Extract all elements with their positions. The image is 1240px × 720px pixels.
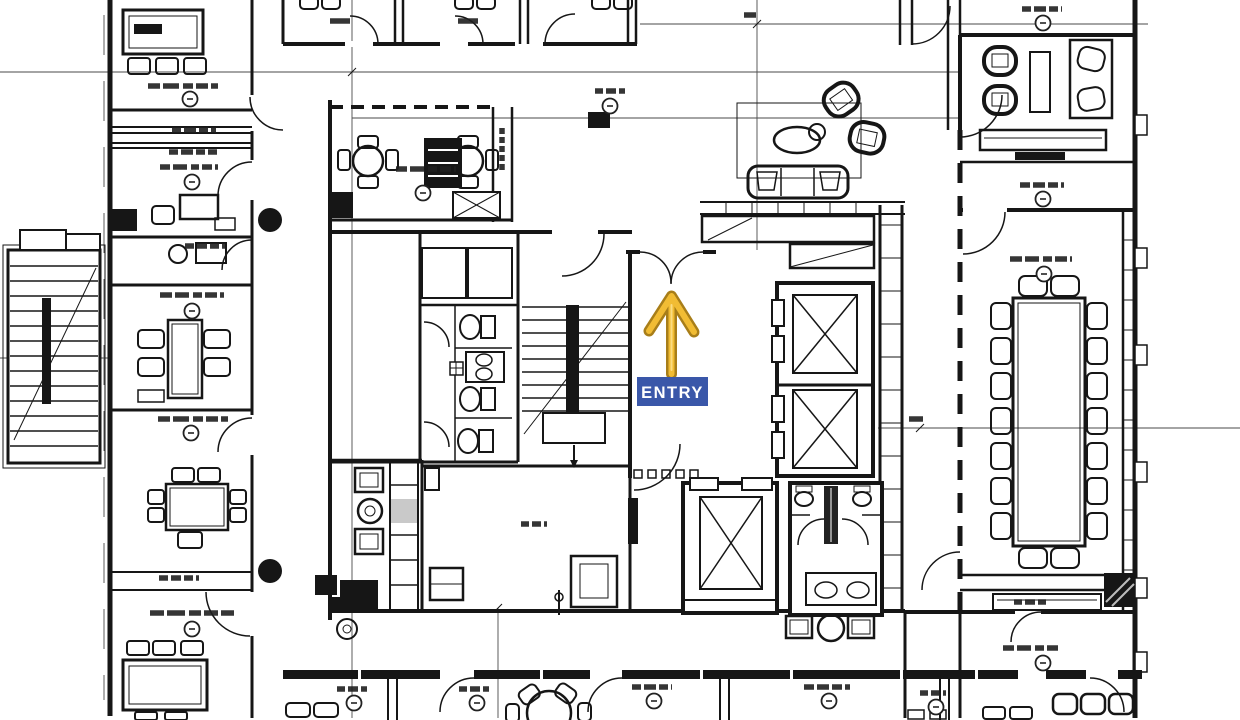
floor-plan-drawing: ENTRY <box>0 0 1240 720</box>
elevator-bank <box>772 283 873 476</box>
staircase-left <box>3 230 105 468</box>
entry-marker: ENTRY <box>637 296 708 406</box>
elevator-single <box>683 478 777 613</box>
entry-label: ENTRY <box>641 384 704 402</box>
restroom-central <box>450 305 512 462</box>
furniture-lounge-center <box>737 78 887 198</box>
restroom-east <box>790 483 882 615</box>
staircase-central <box>522 302 628 468</box>
floor-plan-image: ENTRY <box>0 0 1240 720</box>
